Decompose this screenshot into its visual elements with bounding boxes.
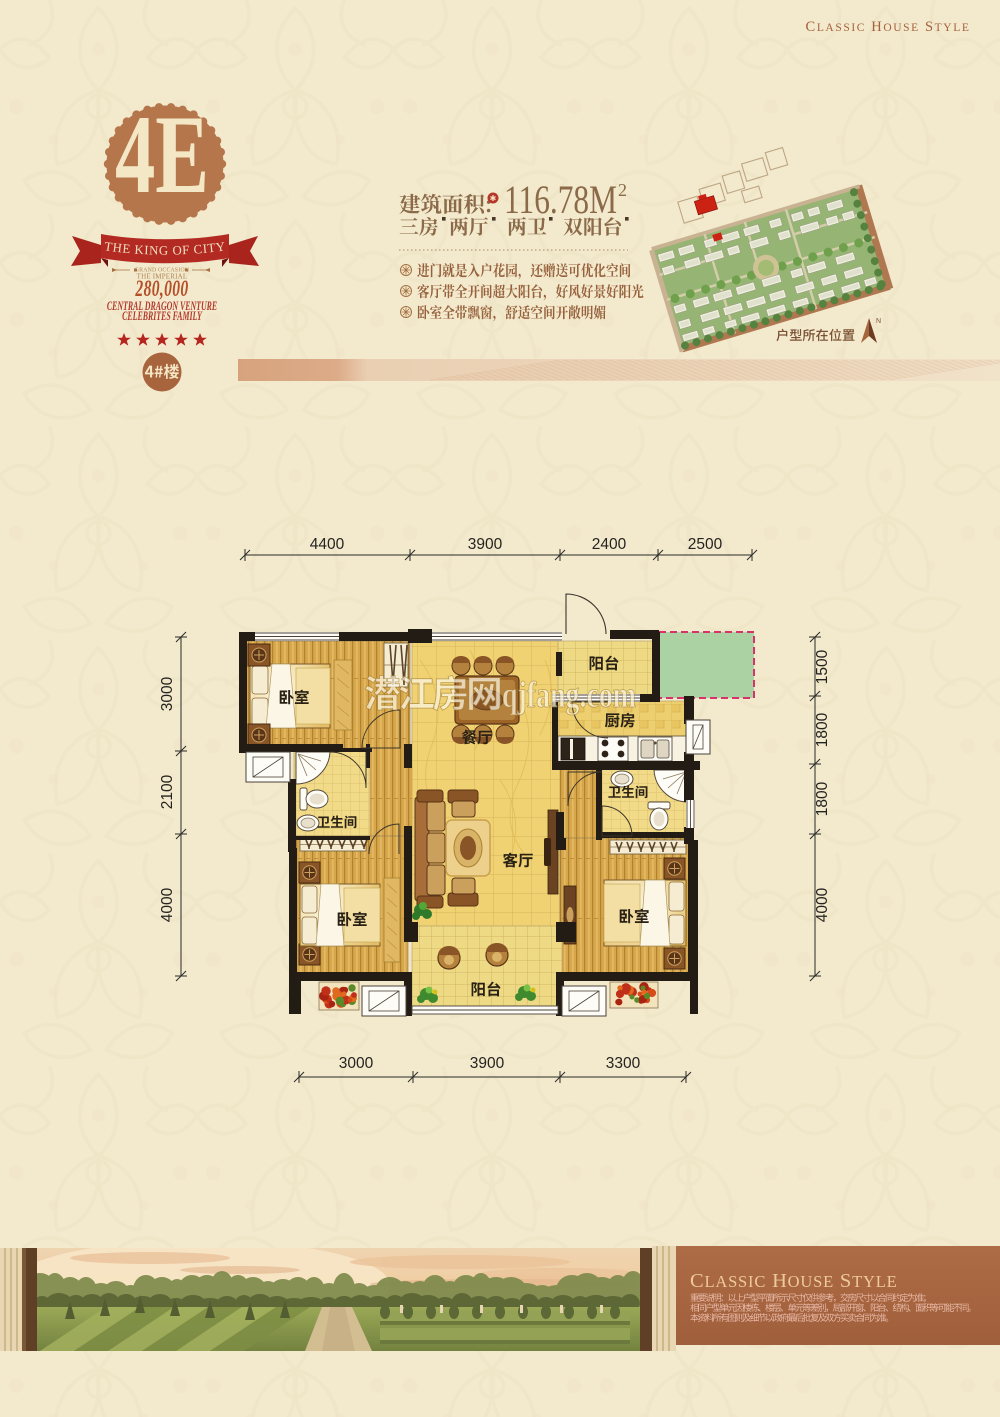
svg-text:1800: 1800 xyxy=(814,781,831,816)
svg-text:3000: 3000 xyxy=(339,1055,374,1072)
svg-text:2100: 2100 xyxy=(159,774,176,809)
svg-text:CLASSIC HOUSE STYLE: CLASSIC HOUSE STYLE xyxy=(690,1270,897,1292)
svg-text:4400: 4400 xyxy=(310,536,345,553)
svg-text:2400: 2400 xyxy=(592,536,627,553)
svg-text:1800: 1800 xyxy=(814,712,831,747)
svg-text:CELEBRITES FAMILY: CELEBRITES FAMILY xyxy=(122,310,203,323)
svg-text:116.78M: 116.78M xyxy=(504,177,617,222)
svg-text:280,000: 280,000 xyxy=(135,276,189,302)
svg-text:4E: 4E xyxy=(115,93,209,217)
svg-text:4000: 4000 xyxy=(814,887,831,922)
svg-text:4000: 4000 xyxy=(159,887,176,922)
svg-text:✱: ✱ xyxy=(490,194,497,203)
svg-text:2: 2 xyxy=(618,180,627,200)
svg-text:3900: 3900 xyxy=(468,536,503,553)
svg-text:3300: 3300 xyxy=(606,1055,641,1072)
svg-text:qjfang.com: qjfang.com xyxy=(502,675,636,716)
svg-text:N: N xyxy=(876,318,881,325)
svg-text:2500: 2500 xyxy=(688,536,723,553)
svg-text:3900: 3900 xyxy=(470,1055,505,1072)
svg-text:1500: 1500 xyxy=(814,649,831,684)
svg-text:CLASSIC HOUSE STYLE: CLASSIC HOUSE STYLE xyxy=(806,19,971,35)
svg-text:3000: 3000 xyxy=(159,676,176,711)
